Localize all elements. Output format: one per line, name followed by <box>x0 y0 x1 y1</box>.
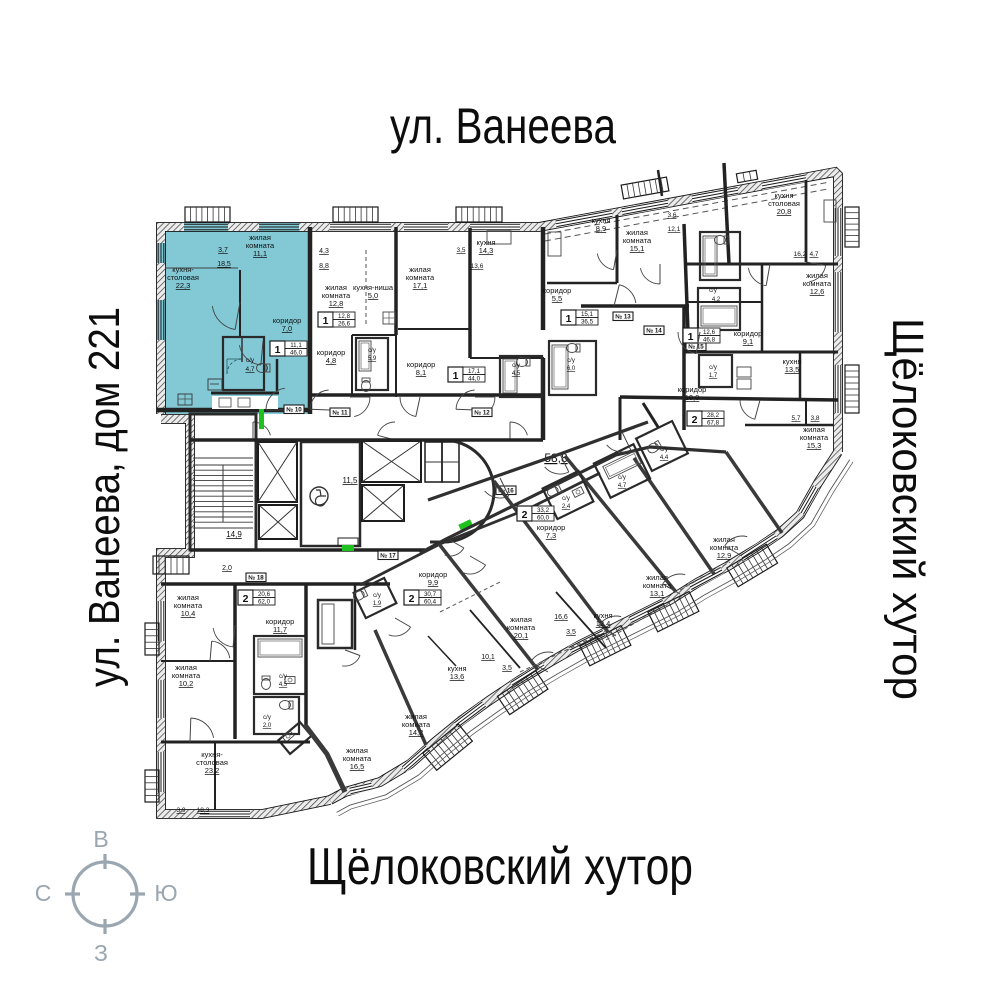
svg-text:11,7: 11,7 <box>273 625 287 634</box>
svg-text:20,6: 20,6 <box>258 591 271 598</box>
svg-text:11,5: 11,5 <box>343 476 359 485</box>
svg-text:1: 1 <box>275 344 281 356</box>
svg-text:2,0: 2,0 <box>222 565 232 572</box>
svg-text:18,5: 18,5 <box>217 261 231 268</box>
svg-text:20,8: 20,8 <box>777 207 792 216</box>
svg-text:с/у: с/у <box>263 715 271 721</box>
svg-text:№ 13: № 13 <box>615 314 631 321</box>
svg-text:46,8: 46,8 <box>703 337 716 344</box>
svg-text:№ 11: № 11 <box>332 410 348 417</box>
svg-text:4,7: 4,7 <box>809 251 818 258</box>
svg-text:с/у: с/у <box>562 496 570 502</box>
svg-text:с/у: с/у <box>567 358 575 364</box>
svg-text:5,0: 5,0 <box>368 291 378 300</box>
svg-text:с/у: с/у <box>279 674 287 680</box>
svg-text:ул. Ванеева, дом 221: ул. Ванеева, дом 221 <box>80 307 129 687</box>
svg-text:№ 14: № 14 <box>646 328 662 335</box>
svg-text:18,3: 18,3 <box>197 807 210 814</box>
svg-text:62,0: 62,0 <box>258 599 271 606</box>
svg-text:2: 2 <box>522 509 528 521</box>
svg-text:2: 2 <box>692 414 698 426</box>
svg-text:В: В <box>93 826 108 852</box>
svg-text:1,7: 1,7 <box>709 373 718 379</box>
svg-text:4,8: 4,8 <box>326 356 336 365</box>
svg-text:13,1: 13,1 <box>650 589 665 598</box>
svg-text:с/у: с/у <box>709 365 717 371</box>
svg-text:13,6: 13,6 <box>450 672 465 681</box>
svg-text:46,0: 46,0 <box>290 350 303 357</box>
svg-text:15,1: 15,1 <box>630 244 645 253</box>
svg-text:14,9: 14,9 <box>226 530 242 539</box>
svg-text:20,1: 20,1 <box>514 631 529 640</box>
svg-text:2,4: 2,4 <box>562 504 571 510</box>
svg-text:12,1: 12,1 <box>668 226 681 233</box>
svg-text:10,4: 10,4 <box>181 609 196 618</box>
svg-text:8,9: 8,9 <box>596 224 606 233</box>
svg-text:4,3: 4,3 <box>319 248 329 255</box>
svg-text:1: 1 <box>453 370 459 382</box>
svg-text:№ 12: № 12 <box>474 410 490 417</box>
svg-text:13,6: 13,6 <box>471 263 484 270</box>
svg-text:10,1: 10,1 <box>481 654 495 661</box>
svg-text:7,0: 7,0 <box>282 324 292 333</box>
svg-text:с/у: с/у <box>368 348 376 354</box>
svg-text:ул. Ванеева: ул. Ванеева <box>390 98 616 154</box>
svg-text:16,2: 16,2 <box>794 251 807 258</box>
svg-text:3,8: 3,8 <box>810 415 819 422</box>
svg-text:с/у: с/у <box>246 357 255 364</box>
svg-text:Ю: Ю <box>154 880 177 906</box>
svg-text:2,0: 2,0 <box>263 723 272 729</box>
svg-text:1: 1 <box>688 331 694 343</box>
svg-text:5,5: 5,5 <box>552 294 562 303</box>
svg-text:16,6: 16,6 <box>554 614 568 621</box>
svg-text:17,1: 17,1 <box>413 281 428 290</box>
svg-text:6,0: 6,0 <box>567 366 576 372</box>
svg-text:3,5: 3,5 <box>502 665 512 672</box>
svg-text:5,7: 5,7 <box>791 415 800 422</box>
svg-text:12,6: 12,6 <box>810 287 825 296</box>
svg-text:3,7: 3,7 <box>218 247 228 254</box>
svg-text:12,8: 12,8 <box>329 299 344 308</box>
svg-text:12,6: 12,6 <box>703 329 716 336</box>
svg-text:3,5: 3,5 <box>456 247 465 254</box>
svg-text:с/у: с/у <box>618 475 626 481</box>
svg-text:14,2: 14,2 <box>409 728 424 737</box>
svg-text:4,5: 4,5 <box>279 682 288 688</box>
svg-text:15,3: 15,3 <box>807 441 822 450</box>
svg-text:16,5: 16,5 <box>350 762 365 771</box>
svg-text:44,0: 44,0 <box>468 376 481 383</box>
svg-text:10,2: 10,2 <box>179 679 194 688</box>
svg-text:2: 2 <box>243 593 249 605</box>
svg-text:10,0: 10,0 <box>685 393 700 402</box>
svg-text:2: 2 <box>409 593 415 605</box>
svg-text:67,8: 67,8 <box>707 420 720 427</box>
svg-text:12,8: 12,8 <box>338 313 351 320</box>
svg-text:22,3: 22,3 <box>176 281 191 290</box>
svg-text:26,6: 26,6 <box>338 321 351 328</box>
svg-text:Щёлоковский хутор: Щёлоковский хутор <box>307 838 693 896</box>
svg-text:9,9: 9,9 <box>428 578 438 587</box>
svg-text:3,6: 3,6 <box>667 212 676 219</box>
svg-text:3,5: 3,5 <box>566 629 576 636</box>
svg-text:8,8: 8,8 <box>319 263 329 270</box>
svg-text:Щёлоковский хутор: Щёлоковский хутор <box>883 318 932 700</box>
svg-text:11,1: 11,1 <box>253 249 267 258</box>
svg-text:15,1: 15,1 <box>581 311 594 318</box>
svg-text:4,5: 4,5 <box>512 371 521 377</box>
svg-text:14,3: 14,3 <box>479 246 494 255</box>
svg-text:С: С <box>35 880 52 906</box>
svg-text:4,7: 4,7 <box>245 366 254 373</box>
svg-text:№ 15: № 15 <box>688 344 704 351</box>
svg-text:11,1: 11,1 <box>290 342 302 349</box>
svg-text:3,9: 3,9 <box>176 807 185 814</box>
svg-text:9,1: 9,1 <box>743 337 753 346</box>
svg-text:№ 17: № 17 <box>380 553 396 560</box>
svg-text:с/у: с/у <box>373 593 381 599</box>
svg-text:1: 1 <box>566 313 572 325</box>
svg-text:30,7: 30,7 <box>424 591 437 598</box>
svg-text:13,5: 13,5 <box>785 365 800 374</box>
svg-text:З: З <box>94 940 108 966</box>
svg-text:23,2: 23,2 <box>205 766 220 775</box>
svg-text:17,1: 17,1 <box>468 368 481 375</box>
svg-text:4,2: 4,2 <box>712 297 721 303</box>
svg-text:№ 18: № 18 <box>248 575 264 582</box>
svg-text:28,2: 28,2 <box>707 412 720 419</box>
svg-text:4,4: 4,4 <box>660 455 669 461</box>
svg-text:8,1: 8,1 <box>416 368 426 377</box>
svg-text:60,4: 60,4 <box>424 599 437 606</box>
svg-text:1,9: 1,9 <box>373 601 382 607</box>
svg-text:с/у: с/у <box>660 447 668 453</box>
svg-text:4,7: 4,7 <box>618 483 627 489</box>
svg-text:12,9: 12,9 <box>717 551 732 560</box>
svg-text:с/у: с/у <box>512 363 520 369</box>
svg-text:№ 10: № 10 <box>286 407 302 414</box>
svg-text:7,3: 7,3 <box>546 531 556 540</box>
svg-text:1: 1 <box>323 315 329 327</box>
svg-text:36,5: 36,5 <box>581 319 594 326</box>
svg-text:с/у: с/у <box>709 288 717 294</box>
svg-text:5,9: 5,9 <box>368 356 377 362</box>
svg-text:60,0: 60,0 <box>537 515 550 522</box>
svg-text:33,2: 33,2 <box>537 507 550 514</box>
